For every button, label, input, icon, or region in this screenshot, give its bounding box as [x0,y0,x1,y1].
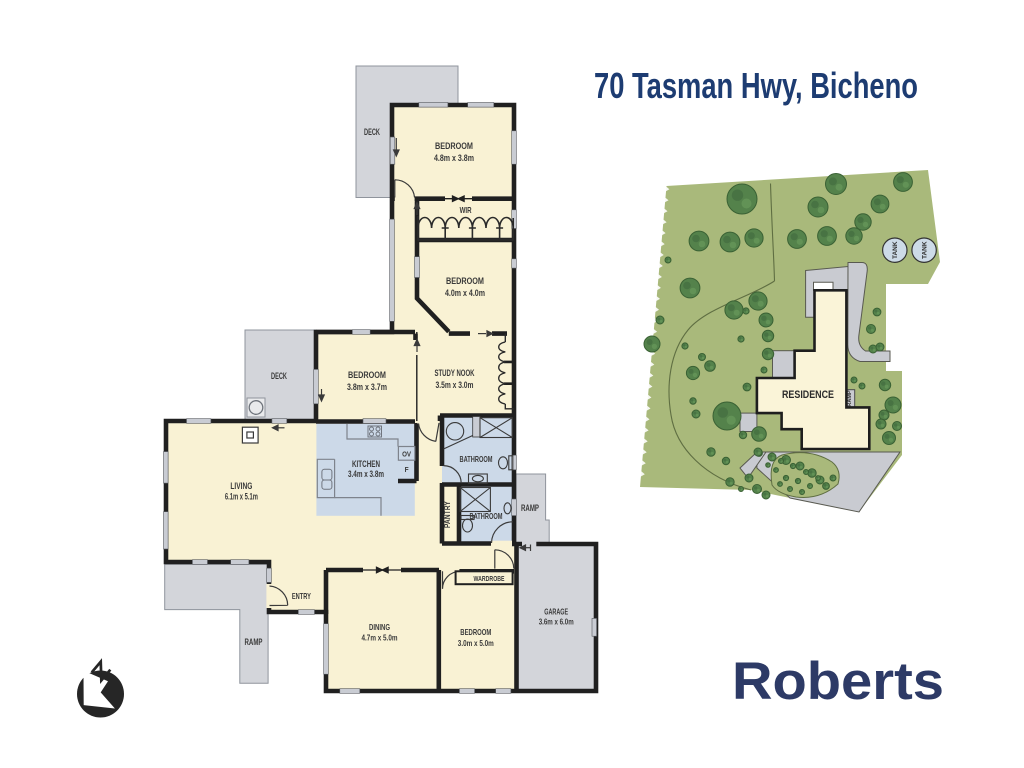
svg-text:BEDROOM: BEDROOM [446,276,484,287]
svg-text:LIVING: LIVING [230,481,252,491]
svg-text:GARAGE: GARAGE [544,607,568,617]
svg-text:4.8m x 3.8m: 4.8m x 3.8m [434,153,474,163]
svg-text:3.0m x 5.0m: 3.0m x 5.0m [458,638,494,648]
svg-text:70 Tasman Hwy, Bicheno: 70 Tasman Hwy, Bicheno [594,65,918,106]
svg-text:BEDROOM: BEDROOM [435,141,473,152]
svg-text:6.1m x 5.1m: 6.1m x 5.1m [225,492,258,502]
svg-text:WIR: WIR [460,205,472,215]
svg-text:DECK: DECK [271,371,287,381]
svg-text:TANK: TANK [921,241,928,259]
svg-text:DINING: DINING [369,622,390,632]
svg-text:PANTRY: PANTRY [442,501,452,528]
svg-text:3.6m x 6.0m: 3.6m x 6.0m [539,617,574,627]
svg-text:TANK: TANK [892,241,899,259]
svg-text:BATHROOM: BATHROOM [460,454,493,464]
svg-text:F: F [405,465,409,474]
svg-text:KITCHEN: KITCHEN [352,459,380,469]
svg-text:3.4m x 3.8m: 3.4m x 3.8m [348,469,384,479]
svg-text:BEDROOM: BEDROOM [460,627,491,637]
svg-text:RAMP: RAMP [245,637,263,647]
svg-text:DECK: DECK [364,127,380,137]
svg-text:4.7m x 5.0m: 4.7m x 5.0m [362,633,398,643]
svg-text:BEDROOM: BEDROOM [348,370,386,381]
svg-text:OV: OV [402,450,411,459]
svg-text:3.5m x 3.0m: 3.5m x 3.0m [436,380,474,390]
svg-text:BATHROOM: BATHROOM [470,511,503,521]
svg-text:STUDY NOOK: STUDY NOOK [435,368,475,378]
svg-text:RAMP: RAMP [521,503,539,513]
svg-text:3.8m x 3.7m: 3.8m x 3.7m [347,382,387,392]
svg-text:WARDROBE: WARDROBE [474,576,505,583]
svg-text:RAMP: RAMP [847,390,853,407]
svg-text:4.0m x 4.0m: 4.0m x 4.0m [445,288,485,298]
svg-text:ENTRY: ENTRY [292,591,311,601]
svg-text:RESIDENCE: RESIDENCE [782,389,834,401]
svg-text:Roberts: Roberts [732,652,944,711]
